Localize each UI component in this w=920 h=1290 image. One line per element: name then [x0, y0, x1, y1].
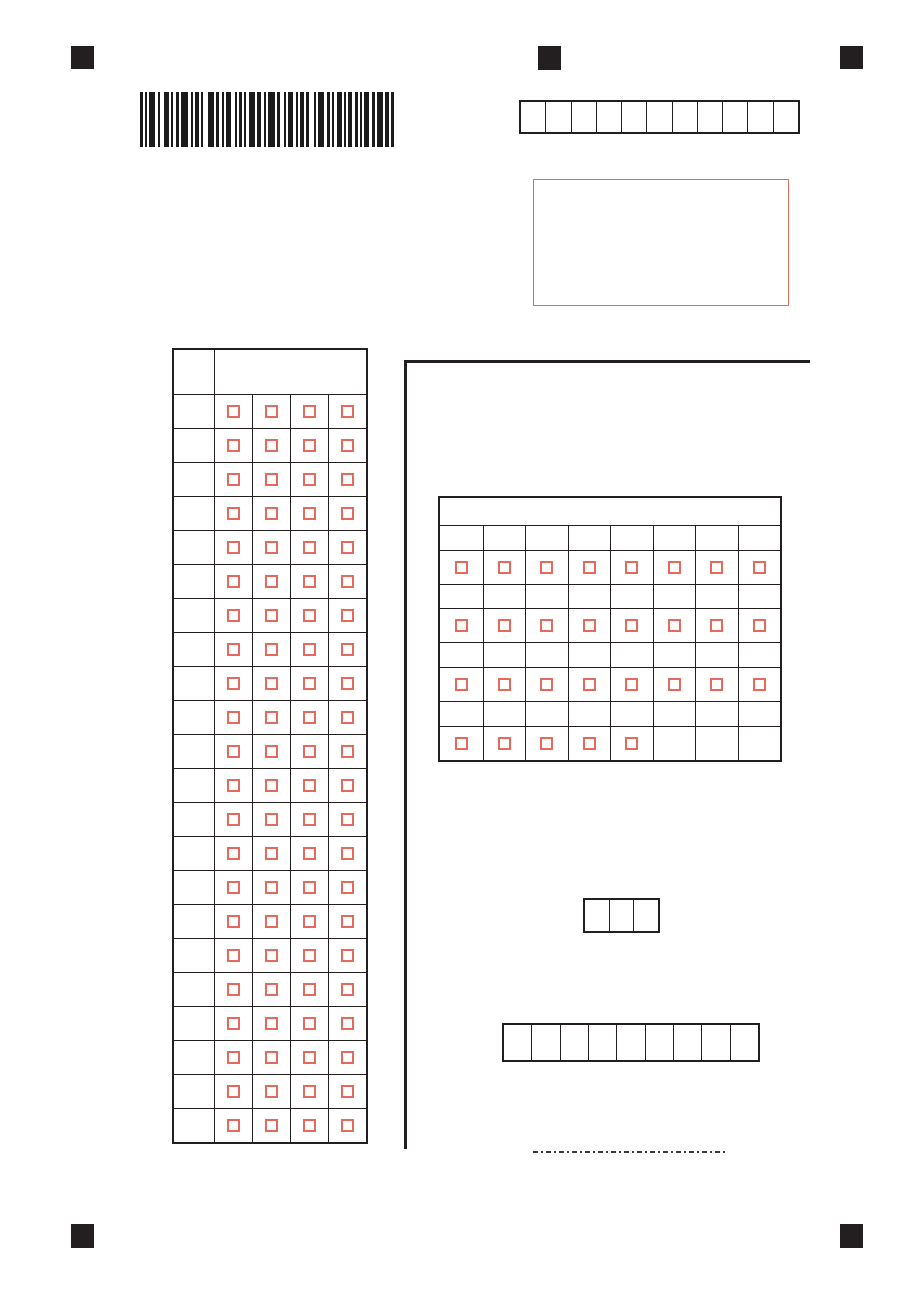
answer-option-cell — [214, 530, 252, 564]
answer-checkbox[interactable] — [227, 813, 240, 826]
answer-option-cell — [440, 726, 483, 760]
code-digit-cell[interactable] — [673, 102, 698, 132]
answer-checkbox[interactable] — [625, 678, 638, 691]
wide-code-digit-cell[interactable] — [674, 1025, 702, 1060]
answer-option-cell — [568, 550, 611, 584]
answer-checkbox[interactable] — [265, 609, 278, 622]
answer-checkbox[interactable] — [303, 609, 316, 622]
answer-checkbox[interactable] — [303, 1085, 316, 1098]
label-cell — [653, 701, 696, 726]
answer-checkbox[interactable] — [303, 949, 316, 962]
wide-code-digit-cell[interactable] — [731, 1025, 758, 1060]
answer-checkbox[interactable] — [753, 678, 766, 691]
answer-option-cell — [214, 700, 252, 734]
answer-checkbox[interactable] — [341, 1119, 354, 1132]
answer-option-cell — [328, 564, 366, 598]
answer-option-cell — [252, 394, 290, 428]
answer-option-cell — [328, 938, 366, 972]
answer-option-cell — [610, 726, 653, 760]
red-frame-box[interactable] — [533, 179, 789, 306]
wide-code-digit-cell[interactable] — [561, 1025, 589, 1060]
answer-checkbox[interactable] — [227, 983, 240, 996]
answer-checkbox[interactable] — [455, 737, 468, 750]
answer-option-cell — [214, 802, 252, 836]
answer-checkbox[interactable] — [303, 847, 316, 860]
answer-option-cell — [525, 608, 568, 642]
answer-checkbox[interactable] — [341, 881, 354, 894]
left-answer-grid — [172, 348, 368, 1144]
question-number-cell — [174, 1040, 214, 1074]
answer-option-cell — [252, 632, 290, 666]
label-cell — [483, 525, 526, 550]
question-number-cell — [174, 700, 214, 734]
answer-checkbox[interactable] — [668, 561, 681, 574]
answer-checkbox[interactable] — [341, 1017, 354, 1030]
answer-checkbox[interactable] — [265, 405, 278, 418]
answer-option-cell — [214, 938, 252, 972]
answer-checkbox[interactable] — [303, 1017, 316, 1030]
answer-checkbox[interactable] — [265, 813, 278, 826]
answer-checkbox[interactable] — [303, 1051, 316, 1064]
label-cell — [738, 584, 781, 608]
answer-checkbox[interactable] — [341, 677, 354, 690]
answer-option-cell — [252, 938, 290, 972]
code-digit-cell[interactable] — [698, 102, 723, 132]
code-digit-cell[interactable] — [521, 102, 546, 132]
answer-checkbox[interactable] — [341, 949, 354, 962]
answer-checkbox[interactable] — [303, 983, 316, 996]
answer-option-cell — [214, 734, 252, 768]
answer-option-cell — [290, 1074, 328, 1108]
answer-option-cell — [440, 608, 483, 642]
answer-option-cell — [252, 530, 290, 564]
label-cell — [525, 642, 568, 667]
answer-option-cell — [252, 666, 290, 700]
answer-checkbox[interactable] — [265, 473, 278, 486]
answer-option-cell — [252, 428, 290, 462]
left-grid-header-cell — [214, 350, 366, 394]
answer-option-cell — [328, 496, 366, 530]
answer-checkbox[interactable] — [227, 1017, 240, 1030]
wide-code-digit-cell[interactable] — [504, 1025, 532, 1060]
answer-option-cell — [525, 726, 568, 760]
answer-option-cell — [290, 632, 328, 666]
answer-option-cell — [328, 1040, 366, 1074]
question-number-cell — [174, 598, 214, 632]
answer-checkbox[interactable] — [303, 1119, 316, 1132]
answer-option-cell — [290, 870, 328, 904]
answer-checkbox[interactable] — [265, 643, 278, 656]
answer-checkbox[interactable] — [341, 643, 354, 656]
answer-checkbox[interactable] — [341, 745, 354, 758]
barcode — [140, 92, 395, 147]
answer-checkbox[interactable] — [710, 619, 723, 632]
answer-option-cell — [695, 608, 738, 642]
answer-checkbox[interactable] — [341, 983, 354, 996]
answer-checkbox[interactable] — [265, 507, 278, 520]
answer-checkbox[interactable] — [265, 1085, 278, 1098]
answer-checkbox[interactable] — [265, 711, 278, 724]
answer-option-cell — [214, 972, 252, 1006]
answer-option-cell — [483, 608, 526, 642]
answer-option-cell — [252, 836, 290, 870]
answer-checkbox[interactable] — [265, 745, 278, 758]
answer-option-cell — [328, 428, 366, 462]
answer-checkbox[interactable] — [540, 678, 553, 691]
answer-option-cell — [328, 1074, 366, 1108]
answer-checkbox[interactable] — [710, 678, 723, 691]
answer-checkbox[interactable] — [540, 619, 553, 632]
answer-checkbox[interactable] — [455, 678, 468, 691]
label-cell — [568, 701, 611, 726]
answer-option-cell — [328, 1006, 366, 1040]
label-cell — [440, 701, 483, 726]
answer-checkbox[interactable] — [265, 1119, 278, 1132]
answer-checkbox[interactable] — [303, 439, 316, 452]
answer-option-cell — [214, 394, 252, 428]
answer-option-cell — [328, 836, 366, 870]
answer-option-cell — [328, 530, 366, 564]
wide-code-digit-cell[interactable] — [617, 1025, 645, 1060]
answer-option-cell — [328, 462, 366, 496]
answer-checkbox[interactable] — [341, 507, 354, 520]
label-cell — [653, 642, 696, 667]
answer-checkbox[interactable] — [625, 737, 638, 750]
barcode-bar — [181, 92, 188, 147]
answer-option-cell — [695, 550, 738, 584]
question-number-cell — [174, 496, 214, 530]
answer-checkbox[interactable] — [227, 1051, 240, 1064]
answer-checkbox[interactable] — [227, 405, 240, 418]
code-digit-cell[interactable] — [647, 102, 672, 132]
answer-option-cell — [252, 1040, 290, 1074]
answer-checkbox[interactable] — [303, 541, 316, 554]
answer-option-cell — [695, 726, 738, 760]
answer-option-cell — [568, 667, 611, 701]
wide-code-digit-cell[interactable] — [589, 1025, 617, 1060]
answer-checkbox[interactable] — [265, 677, 278, 690]
answer-checkbox[interactable] — [341, 1085, 354, 1098]
answer-option-cell — [695, 667, 738, 701]
answer-checkbox[interactable] — [227, 609, 240, 622]
question-number-cell — [174, 428, 214, 462]
question-number-cell — [174, 394, 214, 428]
answer-option-cell — [252, 462, 290, 496]
answer-checkbox[interactable] — [265, 949, 278, 962]
answer-checkbox[interactable] — [227, 1119, 240, 1132]
question-number-cell — [174, 1074, 214, 1108]
answer-checkbox[interactable] — [303, 915, 316, 928]
label-cell — [610, 642, 653, 667]
answer-option-cell — [290, 734, 328, 768]
answer-option-cell — [252, 1074, 290, 1108]
registration-mark-top-center — [538, 46, 561, 70]
answer-option-cell — [328, 598, 366, 632]
answer-checkbox[interactable] — [303, 643, 316, 656]
answer-checkbox[interactable] — [265, 983, 278, 996]
answer-checkbox[interactable] — [341, 439, 354, 452]
answer-option-cell — [328, 394, 366, 428]
answer-checkbox[interactable] — [303, 575, 316, 588]
answer-checkbox[interactable] — [498, 678, 511, 691]
answer-option-cell — [290, 666, 328, 700]
label-cell — [568, 584, 611, 608]
answer-checkbox[interactable] — [668, 678, 681, 691]
wide-code-digit-cell[interactable] — [646, 1025, 674, 1060]
answer-option-cell — [290, 768, 328, 802]
question-number-cell — [174, 632, 214, 666]
answer-checkbox[interactable] — [265, 881, 278, 894]
answer-option-cell — [290, 462, 328, 496]
answer-option-cell — [290, 1108, 328, 1142]
code-digit-cell[interactable] — [723, 102, 748, 132]
answer-option-cell — [252, 598, 290, 632]
question-number-cell — [174, 938, 214, 972]
answer-checkbox[interactable] — [303, 507, 316, 520]
code-digit-cell[interactable] — [774, 102, 798, 132]
answer-checkbox[interactable] — [303, 813, 316, 826]
answer-option-cell — [738, 667, 781, 701]
left-grid-number-header-cell — [174, 350, 214, 394]
answer-checkbox[interactable] — [498, 619, 511, 632]
answer-option-cell — [483, 726, 526, 760]
answer-option-cell — [290, 938, 328, 972]
answer-option-cell — [290, 972, 328, 1006]
label-cell — [695, 525, 738, 550]
answer-option-cell — [214, 1074, 252, 1108]
answer-option-cell — [290, 564, 328, 598]
answer-checkbox[interactable] — [227, 643, 240, 656]
barcode-bar — [391, 92, 394, 147]
answer-checkbox[interactable] — [583, 561, 596, 574]
answer-checkbox[interactable] — [753, 561, 766, 574]
answer-option-cell — [290, 394, 328, 428]
answer-checkbox[interactable] — [753, 619, 766, 632]
answer-checkbox[interactable] — [227, 881, 240, 894]
answer-checkbox[interactable] — [265, 439, 278, 452]
answer-option-cell — [328, 972, 366, 1006]
answer-option-cell — [525, 550, 568, 584]
answer-option-cell — [252, 972, 290, 1006]
answer-checkbox[interactable] — [265, 847, 278, 860]
answer-option-cell — [214, 870, 252, 904]
answer-option-cell — [214, 904, 252, 938]
label-cell — [695, 642, 738, 667]
answer-checkbox[interactable] — [303, 473, 316, 486]
question-number-cell — [174, 734, 214, 768]
question-number-cell — [174, 836, 214, 870]
answer-option-cell — [252, 1006, 290, 1040]
answer-option-cell — [610, 608, 653, 642]
label-cell — [483, 584, 526, 608]
answer-option-cell — [252, 802, 290, 836]
top-code-entry-row — [519, 100, 800, 134]
answer-checkbox[interactable] — [341, 847, 354, 860]
answer-checkbox[interactable] — [668, 619, 681, 632]
answer-option-cell — [653, 550, 696, 584]
code-digit-cell[interactable] — [597, 102, 622, 132]
answer-checkbox[interactable] — [583, 737, 596, 750]
answer-checkbox[interactable] — [227, 507, 240, 520]
answer-checkbox[interactable] — [341, 575, 354, 588]
answer-option-cell — [738, 608, 781, 642]
answer-checkbox[interactable] — [341, 711, 354, 724]
answer-option-cell — [214, 564, 252, 598]
code-digit-cell[interactable] — [572, 102, 597, 132]
answer-option-cell — [328, 700, 366, 734]
answer-checkbox[interactable] — [710, 561, 723, 574]
question-number-cell — [174, 870, 214, 904]
answer-checkbox[interactable] — [455, 561, 468, 574]
answer-option-cell — [328, 870, 366, 904]
small-code-digit-cell[interactable] — [634, 900, 658, 931]
right-answer-grid — [438, 496, 782, 762]
code-digit-cell[interactable] — [546, 102, 571, 132]
answer-option-cell — [483, 550, 526, 584]
small-code-entry-row — [583, 898, 660, 933]
answer-option-cell — [214, 496, 252, 530]
answer-checkbox[interactable] — [625, 561, 638, 574]
answer-checkbox[interactable] — [227, 1085, 240, 1098]
label-cell — [653, 525, 696, 550]
answer-checkbox[interactable] — [227, 677, 240, 690]
answer-option-cell — [328, 1108, 366, 1142]
question-number-cell — [174, 1108, 214, 1142]
answer-option-cell — [290, 1006, 328, 1040]
answer-checkbox[interactable] — [341, 473, 354, 486]
answer-checkbox[interactable] — [341, 609, 354, 622]
answer-checkbox[interactable] — [265, 1017, 278, 1030]
question-number-cell — [174, 564, 214, 598]
answer-option-cell — [738, 726, 781, 760]
answer-option-cell — [290, 428, 328, 462]
answer-option-cell — [214, 1006, 252, 1040]
answer-option-cell — [214, 836, 252, 870]
answer-option-cell — [328, 768, 366, 802]
code-digit-cell[interactable] — [622, 102, 647, 132]
small-code-digit-cell[interactable] — [585, 900, 610, 931]
answer-checkbox[interactable] — [227, 711, 240, 724]
answer-checkbox[interactable] — [265, 541, 278, 554]
answer-checkbox[interactable] — [303, 711, 316, 724]
answer-checkbox[interactable] — [341, 541, 354, 554]
answer-checkbox[interactable] — [227, 745, 240, 758]
label-cell — [525, 701, 568, 726]
wide-code-digit-cell[interactable] — [532, 1025, 560, 1060]
answer-option-cell — [653, 667, 696, 701]
label-cell — [610, 701, 653, 726]
answer-checkbox[interactable] — [227, 949, 240, 962]
answer-checkbox[interactable] — [227, 779, 240, 792]
answer-checkbox[interactable] — [341, 915, 354, 928]
answer-option-cell — [328, 904, 366, 938]
answer-checkbox[interactable] — [227, 439, 240, 452]
answer-option-cell — [252, 700, 290, 734]
answer-checkbox[interactable] — [265, 915, 278, 928]
barcode-bar — [268, 92, 275, 147]
answer-option-cell — [483, 667, 526, 701]
answer-checkbox[interactable] — [455, 619, 468, 632]
answer-option-cell — [290, 904, 328, 938]
answer-checkbox[interactable] — [341, 813, 354, 826]
label-cell — [440, 642, 483, 667]
answer-checkbox[interactable] — [341, 1051, 354, 1064]
answer-option-cell — [290, 598, 328, 632]
answer-option-cell — [653, 608, 696, 642]
answer-option-cell — [290, 802, 328, 836]
answer-checkbox[interactable] — [227, 541, 240, 554]
label-cell — [483, 642, 526, 667]
answer-option-cell — [328, 666, 366, 700]
label-cell — [695, 584, 738, 608]
answer-checkbox[interactable] — [498, 561, 511, 574]
answer-option-cell — [252, 1108, 290, 1142]
answer-checkbox[interactable] — [583, 619, 596, 632]
label-cell — [525, 525, 568, 550]
answer-option-cell — [252, 496, 290, 530]
answer-option-cell — [290, 530, 328, 564]
answer-checkbox[interactable] — [227, 847, 240, 860]
answer-option-cell — [525, 667, 568, 701]
answer-option-cell — [252, 564, 290, 598]
answer-option-cell — [653, 726, 696, 760]
answer-checkbox[interactable] — [625, 619, 638, 632]
label-cell — [568, 525, 611, 550]
answer-checkbox[interactable] — [341, 405, 354, 418]
answer-checkbox[interactable] — [540, 561, 553, 574]
answer-checkbox[interactable] — [265, 1051, 278, 1064]
answer-option-cell — [214, 768, 252, 802]
answer-checkbox[interactable] — [341, 779, 354, 792]
answer-checkbox[interactable] — [227, 473, 240, 486]
omr-answer-sheet-page — [0, 0, 920, 1290]
answer-option-cell — [214, 598, 252, 632]
label-cell — [440, 525, 483, 550]
answer-option-cell — [252, 904, 290, 938]
answer-option-cell — [252, 768, 290, 802]
answer-option-cell — [214, 666, 252, 700]
label-cell — [610, 525, 653, 550]
answer-checkbox[interactable] — [303, 745, 316, 758]
label-cell — [568, 642, 611, 667]
answer-checkbox[interactable] — [303, 405, 316, 418]
answer-option-cell — [290, 496, 328, 530]
answer-checkbox[interactable] — [583, 678, 596, 691]
answer-option-cell — [290, 836, 328, 870]
answer-checkbox[interactable] — [265, 779, 278, 792]
answer-option-cell — [252, 870, 290, 904]
answer-checkbox[interactable] — [227, 575, 240, 588]
answer-checkbox[interactable] — [498, 737, 511, 750]
answer-option-cell — [290, 1040, 328, 1074]
answer-checkbox[interactable] — [540, 737, 553, 750]
answer-option-cell — [214, 1040, 252, 1074]
answer-checkbox[interactable] — [303, 677, 316, 690]
registration-mark-top-left — [71, 46, 94, 69]
answer-option-cell — [214, 632, 252, 666]
question-number-cell — [174, 462, 214, 496]
label-cell — [738, 525, 781, 550]
answer-checkbox[interactable] — [303, 779, 316, 792]
small-code-digit-cell[interactable] — [610, 900, 635, 931]
answer-checkbox[interactable] — [227, 915, 240, 928]
question-number-cell — [174, 666, 214, 700]
wide-code-digit-cell[interactable] — [702, 1025, 730, 1060]
answer-checkbox[interactable] — [265, 575, 278, 588]
code-digit-cell[interactable] — [748, 102, 773, 132]
answer-checkbox[interactable] — [303, 881, 316, 894]
answer-option-cell — [214, 462, 252, 496]
